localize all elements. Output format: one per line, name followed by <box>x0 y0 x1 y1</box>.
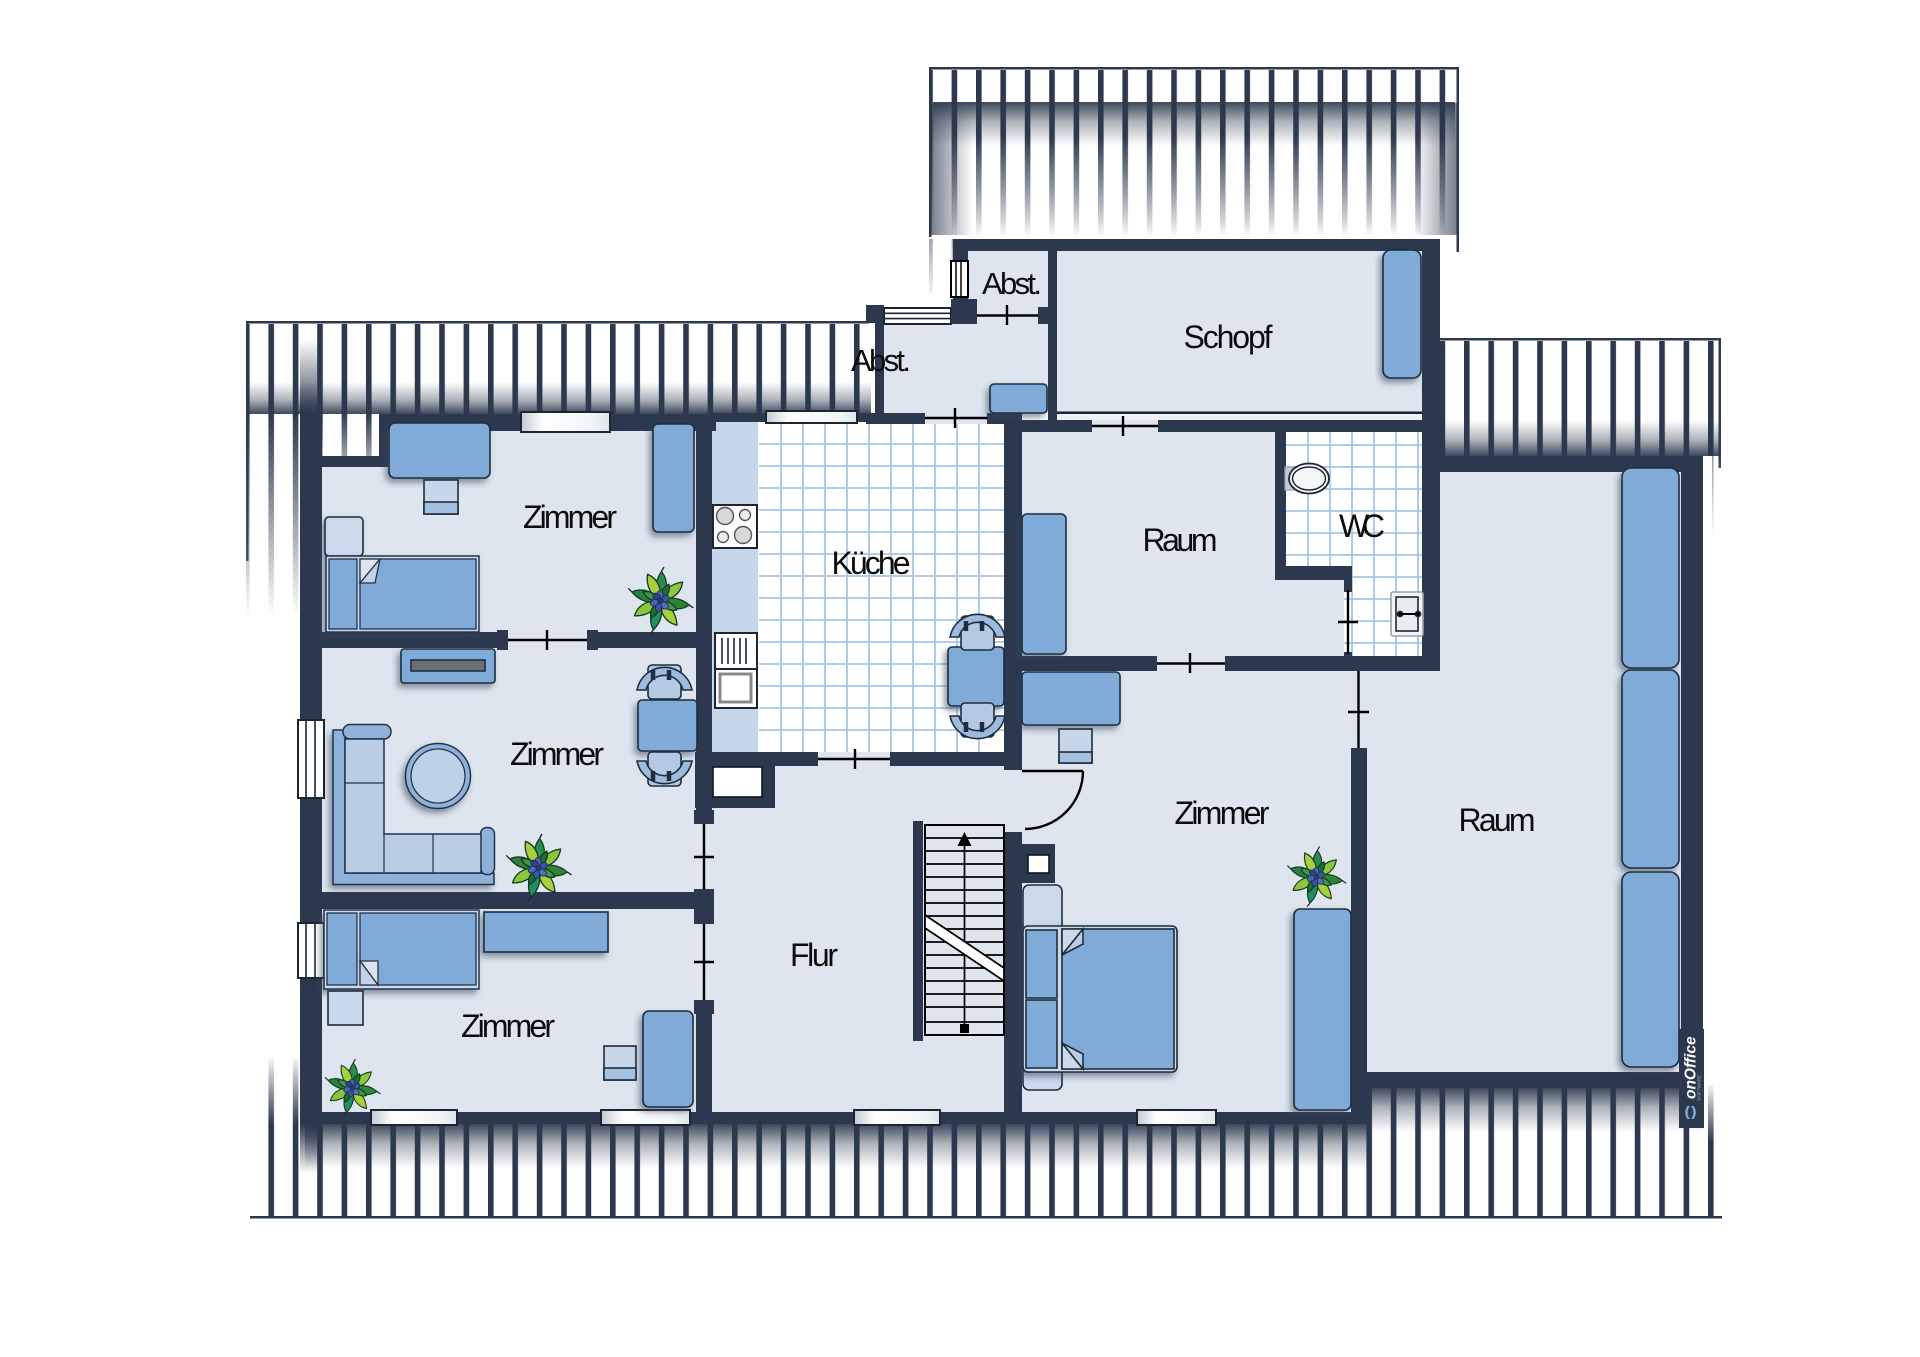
svg-text:Zimmer: Zimmer <box>523 499 617 535</box>
svg-text:Küche: Küche <box>832 545 911 581</box>
svg-text:Schopf: Schopf <box>1184 319 1273 355</box>
svg-text:Zimmer: Zimmer <box>1175 795 1270 831</box>
svg-text:Abst.: Abst. <box>851 343 911 378</box>
svg-text:WC: WC <box>1339 508 1385 544</box>
svg-text:Zimmer: Zimmer <box>510 736 604 772</box>
svg-text:Zimmer: Zimmer <box>461 1008 555 1044</box>
svg-text:Abst.: Abst. <box>982 266 1042 301</box>
svg-text:Raum: Raum <box>1143 522 1218 558</box>
svg-text:Flur: Flur <box>790 937 838 973</box>
svg-text:Raum: Raum <box>1459 802 1536 838</box>
svg-text:SOFTWARE: SOFTWARE <box>1697 1074 1702 1101</box>
